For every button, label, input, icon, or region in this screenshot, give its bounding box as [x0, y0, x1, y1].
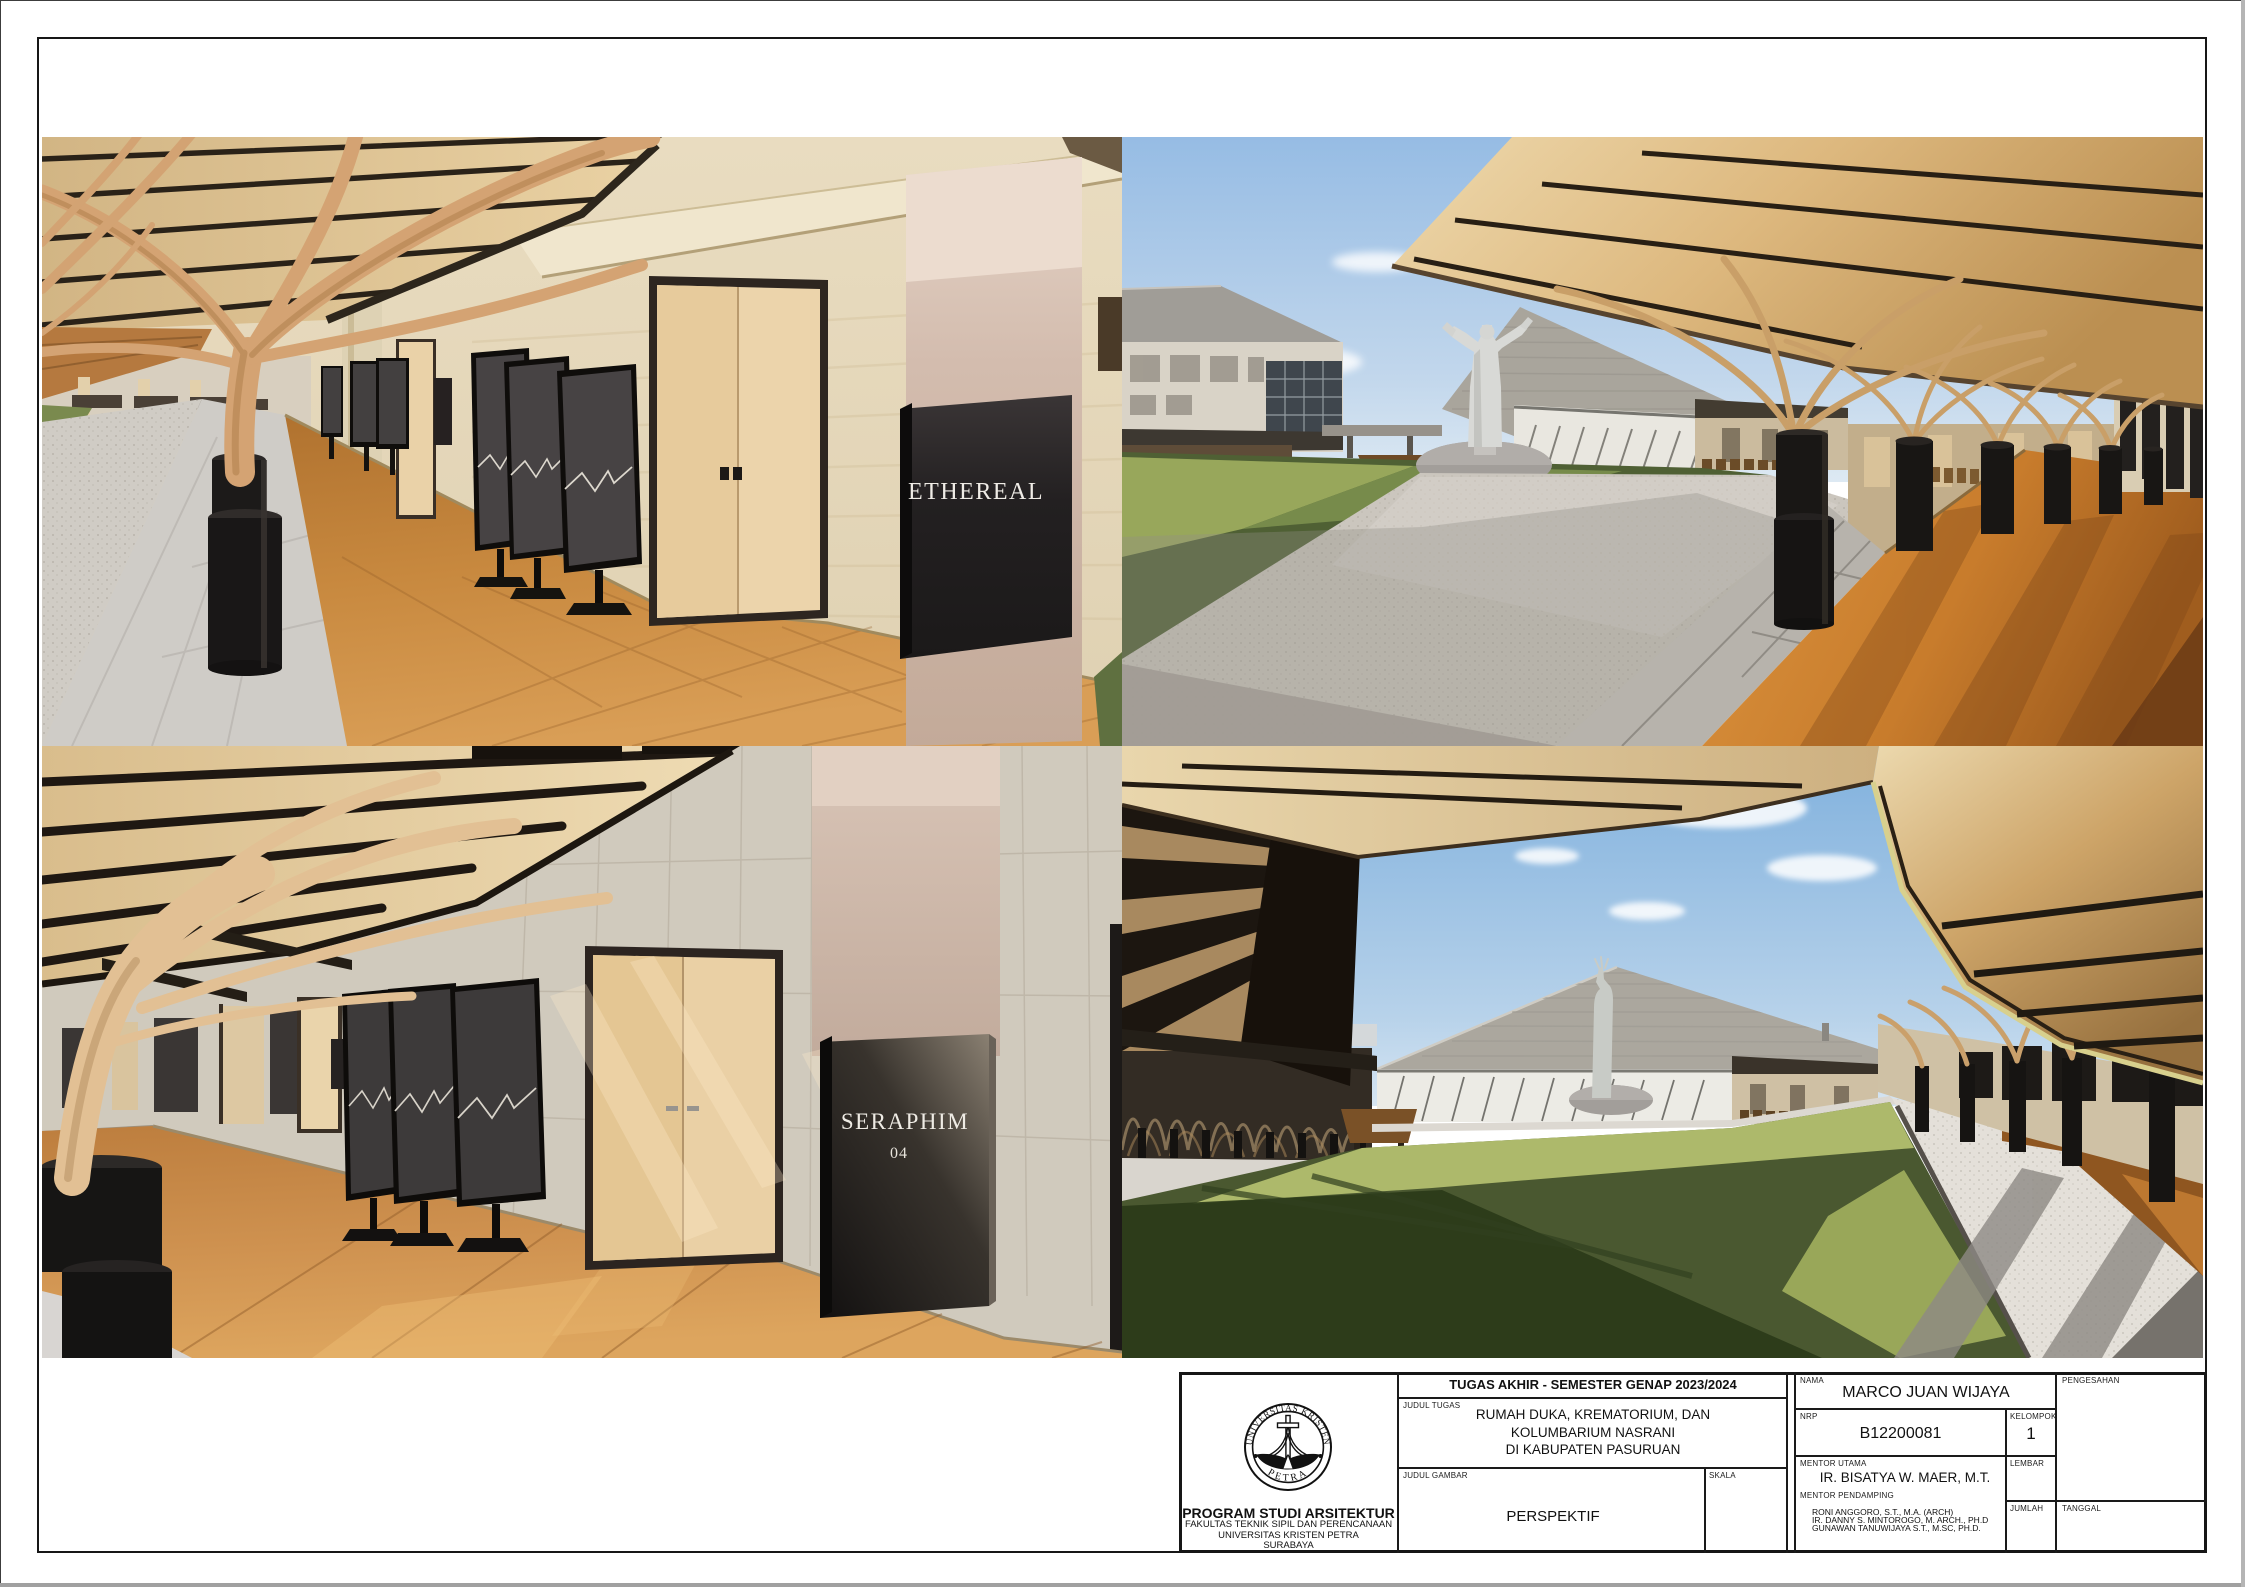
svg-text:ETHEREAL: ETHEREAL — [908, 479, 1044, 505]
svg-text:SERAPHIM: SERAPHIM — [841, 1109, 969, 1134]
svg-text:04: 04 — [890, 1145, 908, 1162]
